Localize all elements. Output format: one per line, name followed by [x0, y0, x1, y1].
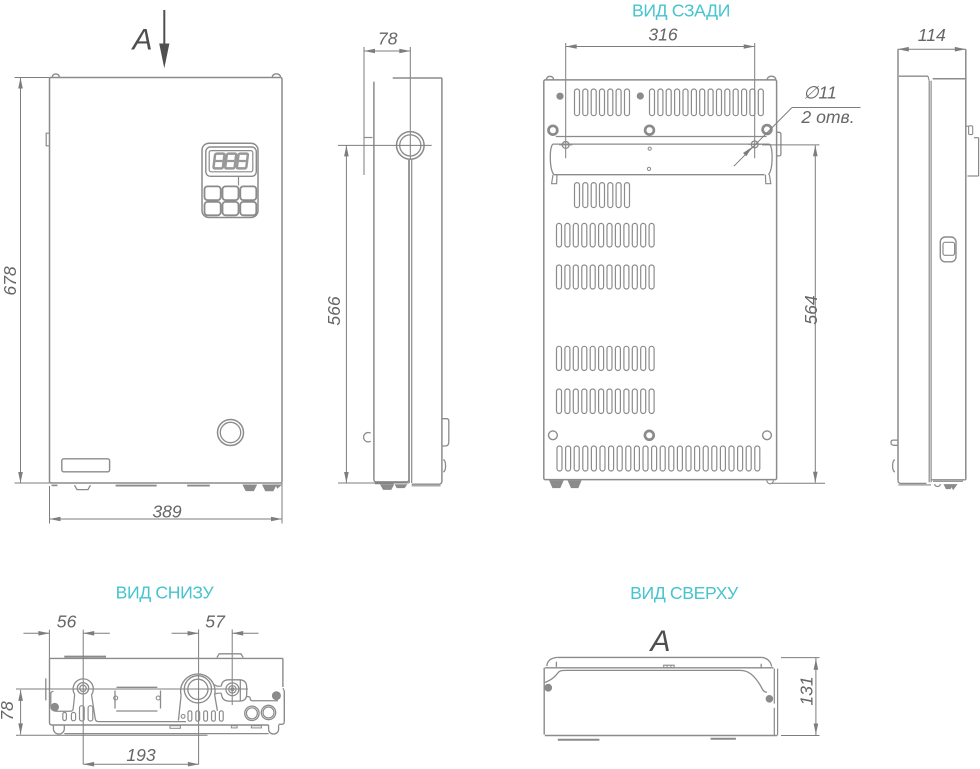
svg-text:2 отв.: 2 отв.	[800, 107, 854, 127]
svg-text:389: 389	[152, 501, 182, 521]
svg-text:678: 678	[0, 266, 20, 296]
svg-text:114: 114	[918, 25, 946, 45]
svg-text:564: 564	[801, 295, 821, 325]
svg-text:316: 316	[648, 24, 678, 44]
svg-text:ВИД СВЕРХУ: ВИД СВЕРХУ	[630, 583, 739, 603]
svg-text:A: A	[130, 24, 152, 57]
svg-text:ВИД СЗАДИ: ВИД СЗАДИ	[632, 0, 730, 20]
svg-text:78: 78	[0, 701, 17, 721]
svg-text:566: 566	[324, 296, 344, 326]
svg-text:193: 193	[126, 745, 156, 765]
svg-text:∅11: ∅11	[803, 83, 837, 103]
svg-text:78: 78	[378, 28, 398, 48]
svg-text:ВИД СНИЗУ: ВИД СНИЗУ	[116, 583, 215, 603]
svg-text:56: 56	[57, 612, 77, 632]
svg-text:57: 57	[205, 612, 226, 632]
svg-text:A: A	[648, 625, 670, 658]
svg-text:131: 131	[796, 676, 816, 705]
